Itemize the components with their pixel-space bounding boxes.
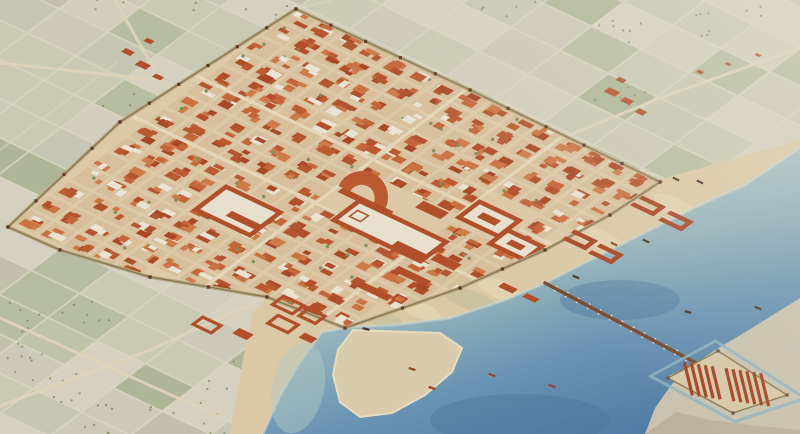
roman-city-reconstruction-painting <box>0 0 800 434</box>
birdseye-city-map <box>0 0 800 434</box>
atmospheric-haze <box>0 0 800 434</box>
